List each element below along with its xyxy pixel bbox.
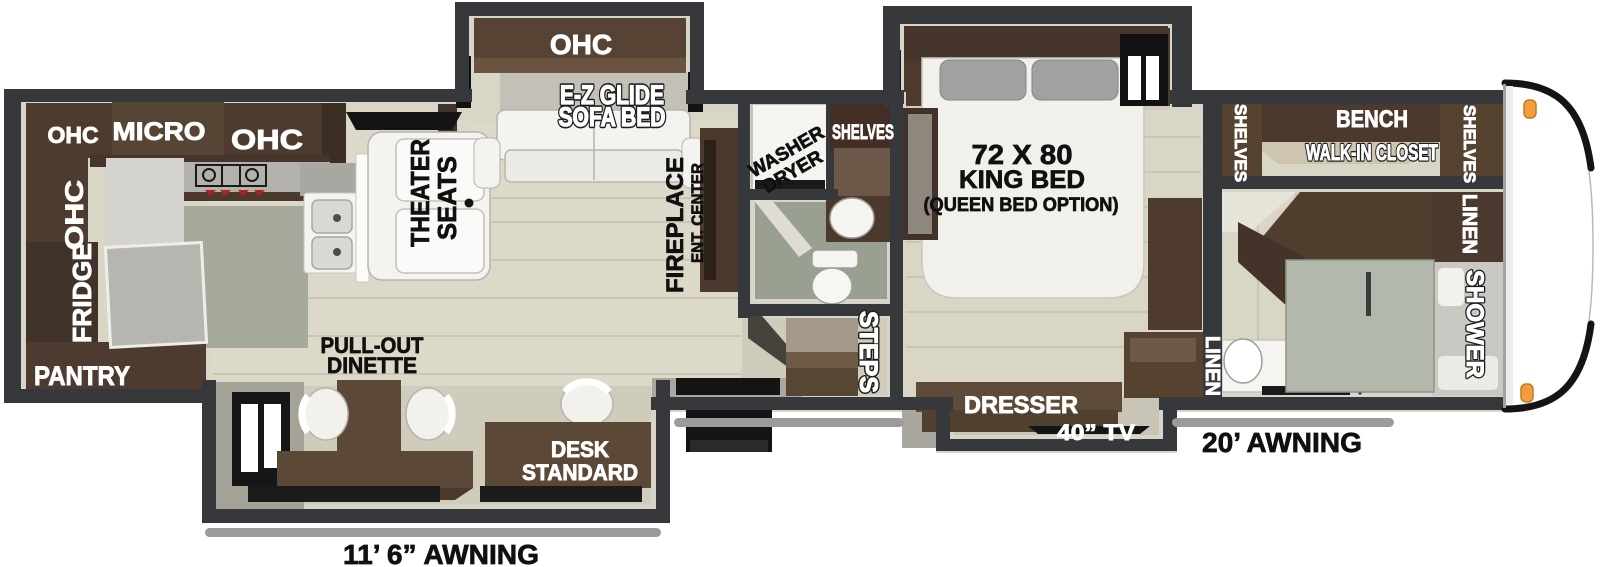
svg-text:FIREPLACE: FIREPLACE [662,157,689,293]
svg-text:40” TV: 40” TV [1057,420,1135,445]
svg-text:KING BED: KING BED [959,166,1085,194]
svg-text:PANTRY: PANTRY [34,361,130,391]
svg-text:(QUEEN BED OPTION): (QUEEN BED OPTION) [924,195,1119,216]
svg-text:11’ 6” AWNING: 11’ 6” AWNING [343,539,539,567]
svg-text:SHELVES: SHELVES [832,121,894,144]
svg-text:LINEN: LINEN [1201,336,1223,396]
svg-text:THEATER: THEATER [405,139,435,247]
svg-text:SEATS: SEATS [432,156,462,240]
svg-text:BENCH: BENCH [1336,106,1408,133]
svg-text:OHC: OHC [47,122,98,148]
svg-text:SHOWER: SHOWER [1461,270,1488,378]
svg-text:OHC: OHC [550,29,612,60]
svg-text:SHELVES: SHELVES [1231,104,1250,182]
svg-text:STANDARD: STANDARD [522,460,638,485]
svg-text:WALK-IN CLOSET: WALK-IN CLOSET [1306,140,1438,165]
svg-text:SHELVES: SHELVES [1460,105,1479,183]
svg-text:STEPS: STEPS [854,311,882,393]
svg-text:LINEN: LINEN [1458,194,1480,254]
svg-text:SOFA BED: SOFA BED [559,102,666,132]
svg-text:DINETTE: DINETTE [327,353,417,378]
svg-text:MICRO: MICRO [113,118,206,146]
svg-text:ENT. CENTER: ENT. CENTER [688,163,707,263]
svg-text:DESK: DESK [551,437,609,462]
svg-text:OHC: OHC [231,124,303,155]
svg-text:OHC: OHC [61,180,89,250]
svg-text:20’ AWNING: 20’ AWNING [1202,427,1362,458]
svg-text:FRIDGE: FRIDGE [67,243,97,343]
svg-text:DRESSER: DRESSER [964,392,1078,419]
